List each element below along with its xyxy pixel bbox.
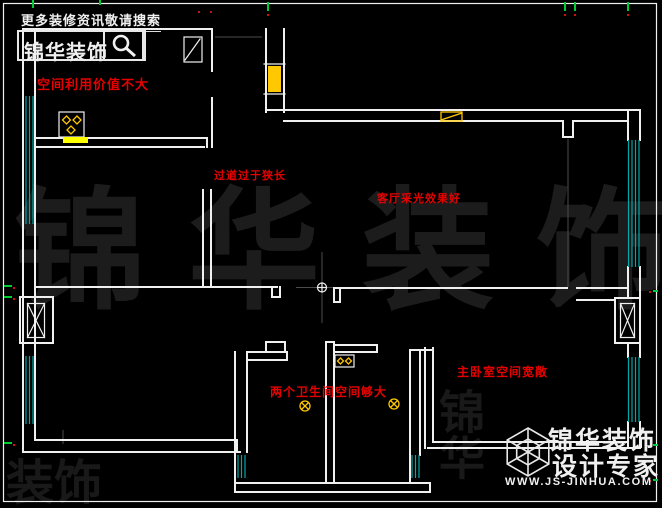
annotation-bathrooms: 两个卫生间空间够大 [270,383,387,400]
search-hint-text: 更多装修资讯敬请搜索 [21,10,161,32]
stove-icon [59,112,88,143]
annotation-living-room: 客厅采光效果好 [377,190,461,206]
brand-cube-icon [502,424,554,480]
footer-website-url: WWW.JS-JINHUA.COM [505,476,653,488]
entry-door-icon [184,37,202,62]
floor-drain-icon [300,401,310,411]
annotation-corridor: 过道过于狭长 [214,167,286,183]
annotation-kitchen: 空间利用价值不大 [37,74,149,93]
sink-icon [335,355,354,367]
column-box-left [20,297,53,343]
plot-tick-marks [4,0,658,482]
search-icon-box [103,30,146,61]
brand-logo-box: 锦华装饰 [17,30,144,61]
annotation-master-bedroom: 主卧室空间宽敞 [457,363,548,380]
floor-plan-canvas: 锦华装饰 锦华 装饰 [0,0,662,508]
door-marker [264,64,285,94]
search-icon [105,32,144,59]
brand-logo-text: 锦华装饰 [24,36,108,65]
window-marker [441,112,462,121]
floor-drain-icon [389,399,399,409]
column-box-right [615,298,640,343]
center-point-marker [318,283,327,292]
